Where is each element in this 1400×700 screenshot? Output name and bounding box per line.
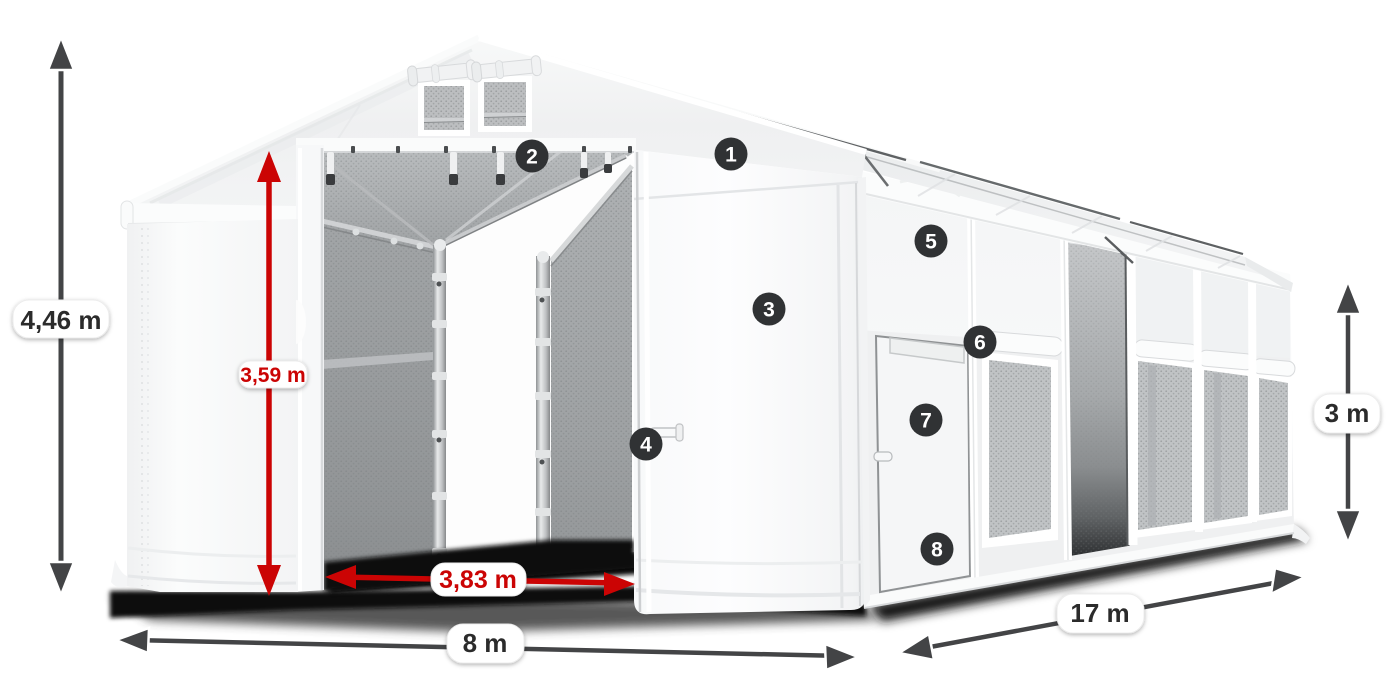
svg-text:3,83 m: 3,83 m xyxy=(439,566,517,594)
svg-text:8 m: 8 m xyxy=(463,628,508,658)
svg-text:4,46 m: 4,46 m xyxy=(21,305,102,335)
svg-text:1: 1 xyxy=(725,144,737,167)
svg-text:3 m: 3 m xyxy=(1325,398,1370,428)
svg-text:8: 8 xyxy=(931,539,943,562)
svg-text:3,59 m: 3,59 m xyxy=(240,364,305,387)
svg-text:2: 2 xyxy=(526,146,538,169)
svg-text:5: 5 xyxy=(925,231,937,254)
svg-text:3: 3 xyxy=(763,299,775,322)
svg-text:7: 7 xyxy=(920,410,932,433)
svg-text:17 m: 17 m xyxy=(1070,598,1129,628)
svg-text:4: 4 xyxy=(640,434,652,457)
svg-text:6: 6 xyxy=(974,332,986,355)
